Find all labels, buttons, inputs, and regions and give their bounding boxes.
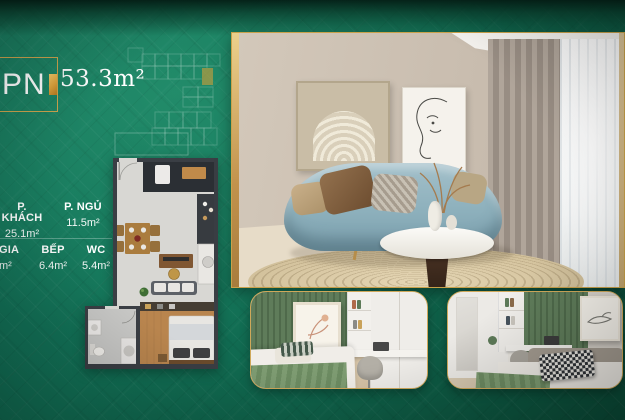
green-blanket (476, 372, 551, 389)
laptop (544, 336, 559, 345)
bird-artwork (580, 296, 620, 341)
bedroom (140, 302, 214, 364)
balcony-outline (115, 133, 188, 155)
green-knob (488, 336, 497, 345)
book (358, 320, 362, 329)
top-dark-band (0, 0, 625, 36)
wardrobe-seam (399, 292, 400, 388)
living-room-photo (231, 32, 625, 288)
dried-plant (410, 151, 480, 221)
desk-item (373, 342, 389, 351)
shelf-line (499, 328, 524, 329)
brochure-page: PN 53.3m² P. KHÁCH 25.1m² P. NGỦ 11.5m² … (0, 0, 625, 420)
small-vase (446, 215, 457, 230)
book (505, 298, 509, 307)
green-striped-blanket (250, 362, 348, 389)
book-shelf (347, 292, 371, 354)
gold-wall-trim-right (619, 33, 624, 287)
apartment-floor-plan (85, 130, 218, 370)
gold-square-icon (49, 74, 57, 95)
book (357, 300, 361, 309)
window-glow (560, 39, 621, 288)
checkered-pillow (281, 341, 314, 357)
unit-type-badge: PN (0, 57, 58, 112)
bedroom-photo-1 (250, 291, 428, 389)
desk-chair (357, 356, 383, 380)
houndstooth-pillow (539, 349, 596, 381)
arch-motif (313, 111, 375, 161)
book (353, 320, 357, 329)
shelf-line (348, 310, 371, 311)
book (510, 298, 514, 307)
wardrobe-panel (456, 297, 478, 371)
gold-wall-trim-left (232, 33, 239, 287)
abstract-arch-artwork (296, 81, 390, 171)
bedroom-photo-2 (447, 291, 623, 389)
unit-type-label: PN (2, 70, 46, 100)
room-area: 6.4m² (30, 261, 76, 272)
book (511, 316, 515, 325)
book (352, 300, 356, 309)
book (506, 316, 510, 325)
room-name: P. KHÁCH (0, 202, 46, 224)
room-label-kitchen: BẾP 6.4m² (30, 245, 76, 272)
book-shelf (498, 292, 524, 352)
white-vase (428, 201, 442, 231)
sheer-window (560, 39, 621, 288)
room-label-living: P. KHÁCH 25.1m² (0, 202, 46, 240)
highlighted-unit (202, 68, 213, 85)
total-area-label: 53.3m² (60, 66, 145, 92)
coffee-table-top (380, 227, 494, 259)
room-name: BẾP (30, 245, 76, 256)
shelf-line (499, 310, 524, 311)
bird-sketch (582, 298, 618, 339)
shelf-line (348, 330, 371, 331)
